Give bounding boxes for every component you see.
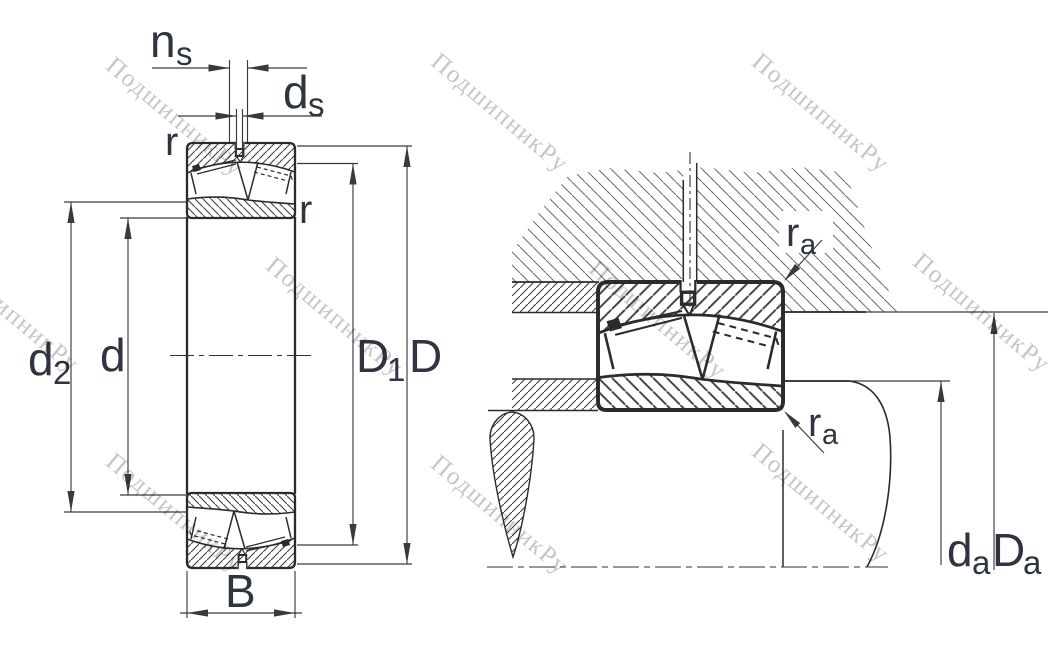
inner-ring-spacer <box>512 379 598 410</box>
shaft-fillet-section <box>490 412 534 557</box>
technical-drawing-page: n s d s r r d 2 d D 1 D B r <box>0 0 1050 650</box>
shaft-shoulder-curve <box>849 381 891 567</box>
dim-label-ds: d s <box>283 66 325 123</box>
outer-inner-ring-section-bottom <box>187 493 295 570</box>
dim-label-d2: d 2 <box>28 333 71 391</box>
dim-label-r-side: r <box>299 188 312 232</box>
dim-label-da: d a <box>947 524 991 581</box>
outer-ring-spacer <box>512 283 598 312</box>
dim-label-ns: n s <box>150 15 193 72</box>
right-view-mounting <box>487 152 1048 570</box>
dim-label-r-top: r <box>165 120 178 164</box>
ns-extension-lines <box>230 60 248 142</box>
left-view-bearing-cross-section <box>170 141 312 570</box>
dim-label-ra-bottom: r a <box>808 401 839 451</box>
dim-label-D1: D 1 <box>356 330 405 388</box>
dim-label-Da: D a <box>992 524 1042 581</box>
outer-inner-ring-section-top <box>187 141 295 218</box>
dim-label-d: d <box>100 329 126 381</box>
dim-label-B: B <box>225 565 256 617</box>
dimension-labels: n s d s r r d 2 d D 1 D B r <box>28 15 1042 617</box>
bearing-diagram: n s d s r r d 2 d D 1 D B r <box>0 0 1050 650</box>
dim-label-D: D <box>409 330 442 382</box>
